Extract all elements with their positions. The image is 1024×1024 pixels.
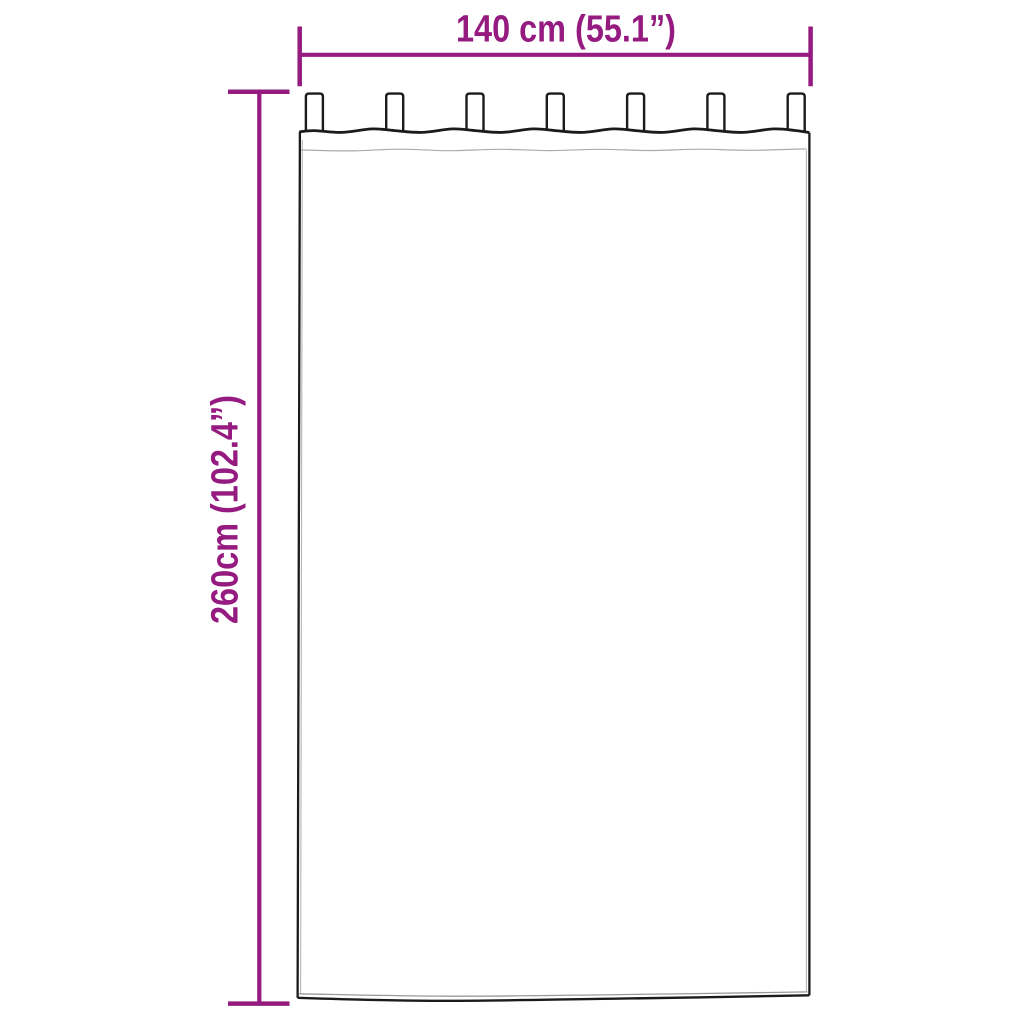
svg-text:260cm (102.4”): 260cm (102.4”) xyxy=(205,395,247,624)
svg-text:140 cm (55.1”): 140 cm (55.1”) xyxy=(456,9,676,51)
